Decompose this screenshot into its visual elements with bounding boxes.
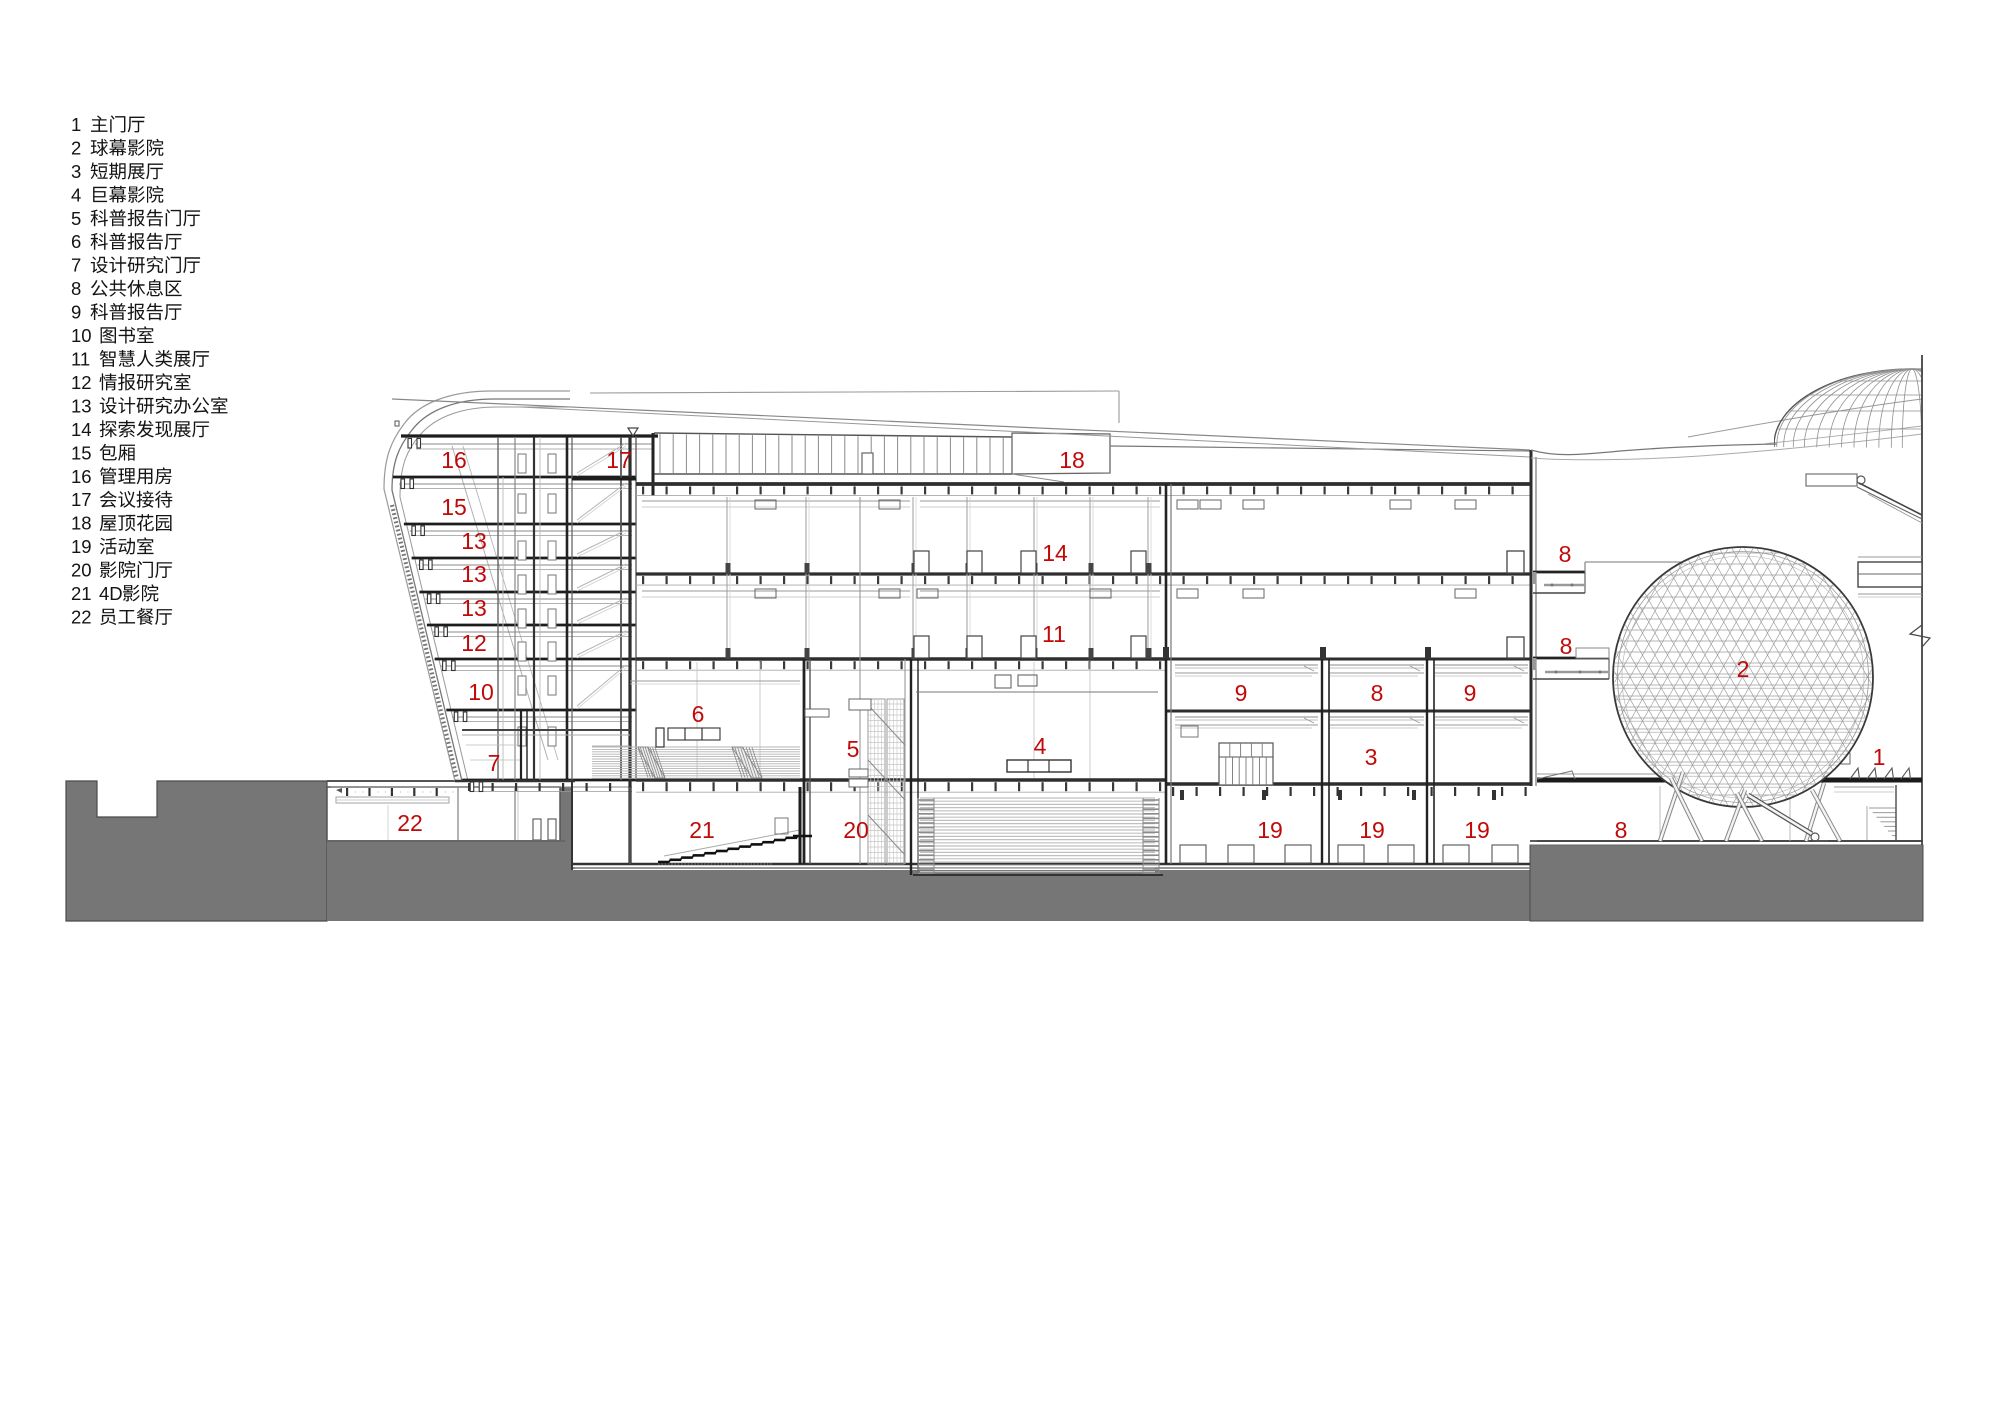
- svg-text:8: 8: [1371, 680, 1384, 706]
- svg-text:18: 18: [71, 513, 92, 534]
- svg-text:4D: 4D: [99, 583, 123, 604]
- svg-text:8: 8: [1559, 541, 1572, 567]
- svg-text:19: 19: [1359, 817, 1385, 843]
- svg-text:3: 3: [1365, 744, 1378, 770]
- svg-text:2: 2: [71, 137, 81, 158]
- svg-text:1: 1: [71, 114, 81, 135]
- svg-text:12: 12: [71, 372, 92, 393]
- svg-text:2: 2: [1737, 656, 1750, 682]
- svg-text:17: 17: [71, 489, 92, 510]
- svg-text:8: 8: [71, 278, 81, 299]
- svg-text:10: 10: [71, 325, 92, 346]
- svg-text:21: 21: [71, 583, 92, 604]
- svg-text:19: 19: [71, 536, 92, 557]
- svg-text:1: 1: [1873, 744, 1886, 770]
- svg-text:14: 14: [71, 419, 92, 440]
- svg-text:22: 22: [71, 607, 92, 628]
- svg-text:9: 9: [71, 302, 81, 323]
- svg-text:19: 19: [1257, 817, 1283, 843]
- svg-text:21: 21: [689, 817, 715, 843]
- svg-text:3: 3: [71, 161, 81, 182]
- svg-text:11: 11: [1042, 621, 1066, 647]
- svg-text:14: 14: [1042, 540, 1068, 566]
- svg-text:5: 5: [71, 208, 81, 229]
- svg-text:7: 7: [71, 255, 81, 276]
- svg-text:20: 20: [71, 560, 92, 581]
- svg-text:12: 12: [461, 630, 487, 656]
- svg-text:8: 8: [1615, 817, 1628, 843]
- svg-text:8: 8: [1560, 633, 1573, 659]
- svg-text:13: 13: [461, 528, 487, 554]
- svg-text:6: 6: [71, 231, 81, 252]
- svg-text:4: 4: [71, 184, 81, 205]
- svg-text:6: 6: [692, 701, 705, 727]
- svg-text:9: 9: [1235, 680, 1248, 706]
- svg-text:20: 20: [843, 817, 869, 843]
- svg-text:13: 13: [461, 561, 487, 587]
- svg-text:11: 11: [71, 349, 90, 370]
- svg-text:16: 16: [441, 447, 467, 473]
- svg-text:15: 15: [441, 494, 467, 520]
- svg-text:10: 10: [468, 679, 494, 705]
- svg-text:5: 5: [847, 736, 860, 762]
- svg-text:19: 19: [1464, 817, 1490, 843]
- svg-text:22: 22: [397, 810, 423, 836]
- svg-text:13: 13: [461, 595, 487, 621]
- svg-text:9: 9: [1464, 680, 1477, 706]
- svg-text:16: 16: [71, 466, 92, 487]
- svg-text:18: 18: [1059, 447, 1085, 473]
- svg-text:13: 13: [71, 395, 92, 416]
- svg-text:7: 7: [488, 750, 501, 776]
- svg-text:4: 4: [1034, 733, 1047, 759]
- svg-text:17: 17: [606, 447, 632, 473]
- svg-text:15: 15: [71, 442, 92, 463]
